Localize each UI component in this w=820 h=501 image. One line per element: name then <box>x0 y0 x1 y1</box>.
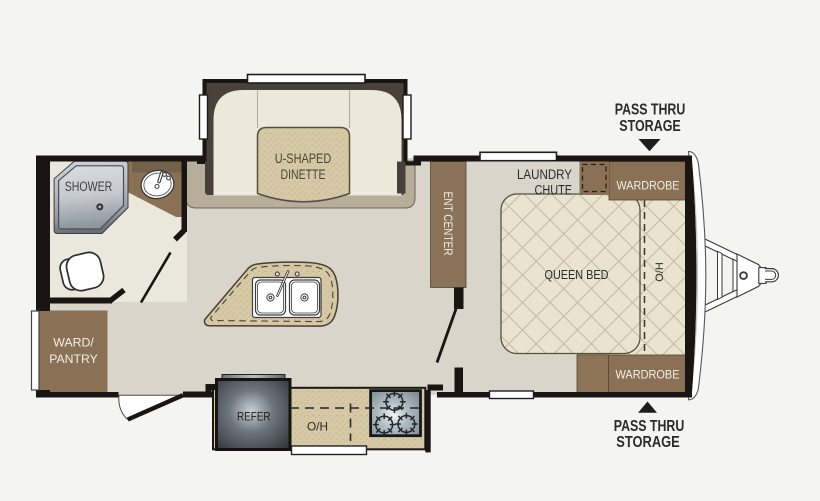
svg-text:PASS THRU: PASS THRU <box>615 102 686 119</box>
svg-text:O/H: O/H <box>654 262 666 282</box>
svg-text:O/H: O/H <box>307 420 328 434</box>
svg-text:REFER: REFER <box>237 410 271 423</box>
svg-text:SHOWER: SHOWER <box>65 179 113 194</box>
svg-text:STORAGE: STORAGE <box>619 118 681 135</box>
svg-text:U-SHAPED: U-SHAPED <box>275 151 332 166</box>
svg-text:ENT CENTER: ENT CENTER <box>441 192 455 256</box>
svg-text:WARDROBE: WARDROBE <box>616 368 680 382</box>
svg-text:DINETTE: DINETTE <box>281 167 326 182</box>
svg-text:PASS THRU: PASS THRU <box>614 418 685 435</box>
svg-text:WARDROBE: WARDROBE <box>617 179 680 193</box>
svg-text:QUEEN BED: QUEEN BED <box>545 267 609 282</box>
svg-text:STORAGE: STORAGE <box>616 434 680 451</box>
svg-text:WARD/: WARD/ <box>53 336 94 350</box>
svg-text:CHUTE: CHUTE <box>535 183 573 198</box>
svg-text:PANTRY: PANTRY <box>49 352 98 366</box>
svg-text:LAUNDRY: LAUNDRY <box>517 167 572 182</box>
